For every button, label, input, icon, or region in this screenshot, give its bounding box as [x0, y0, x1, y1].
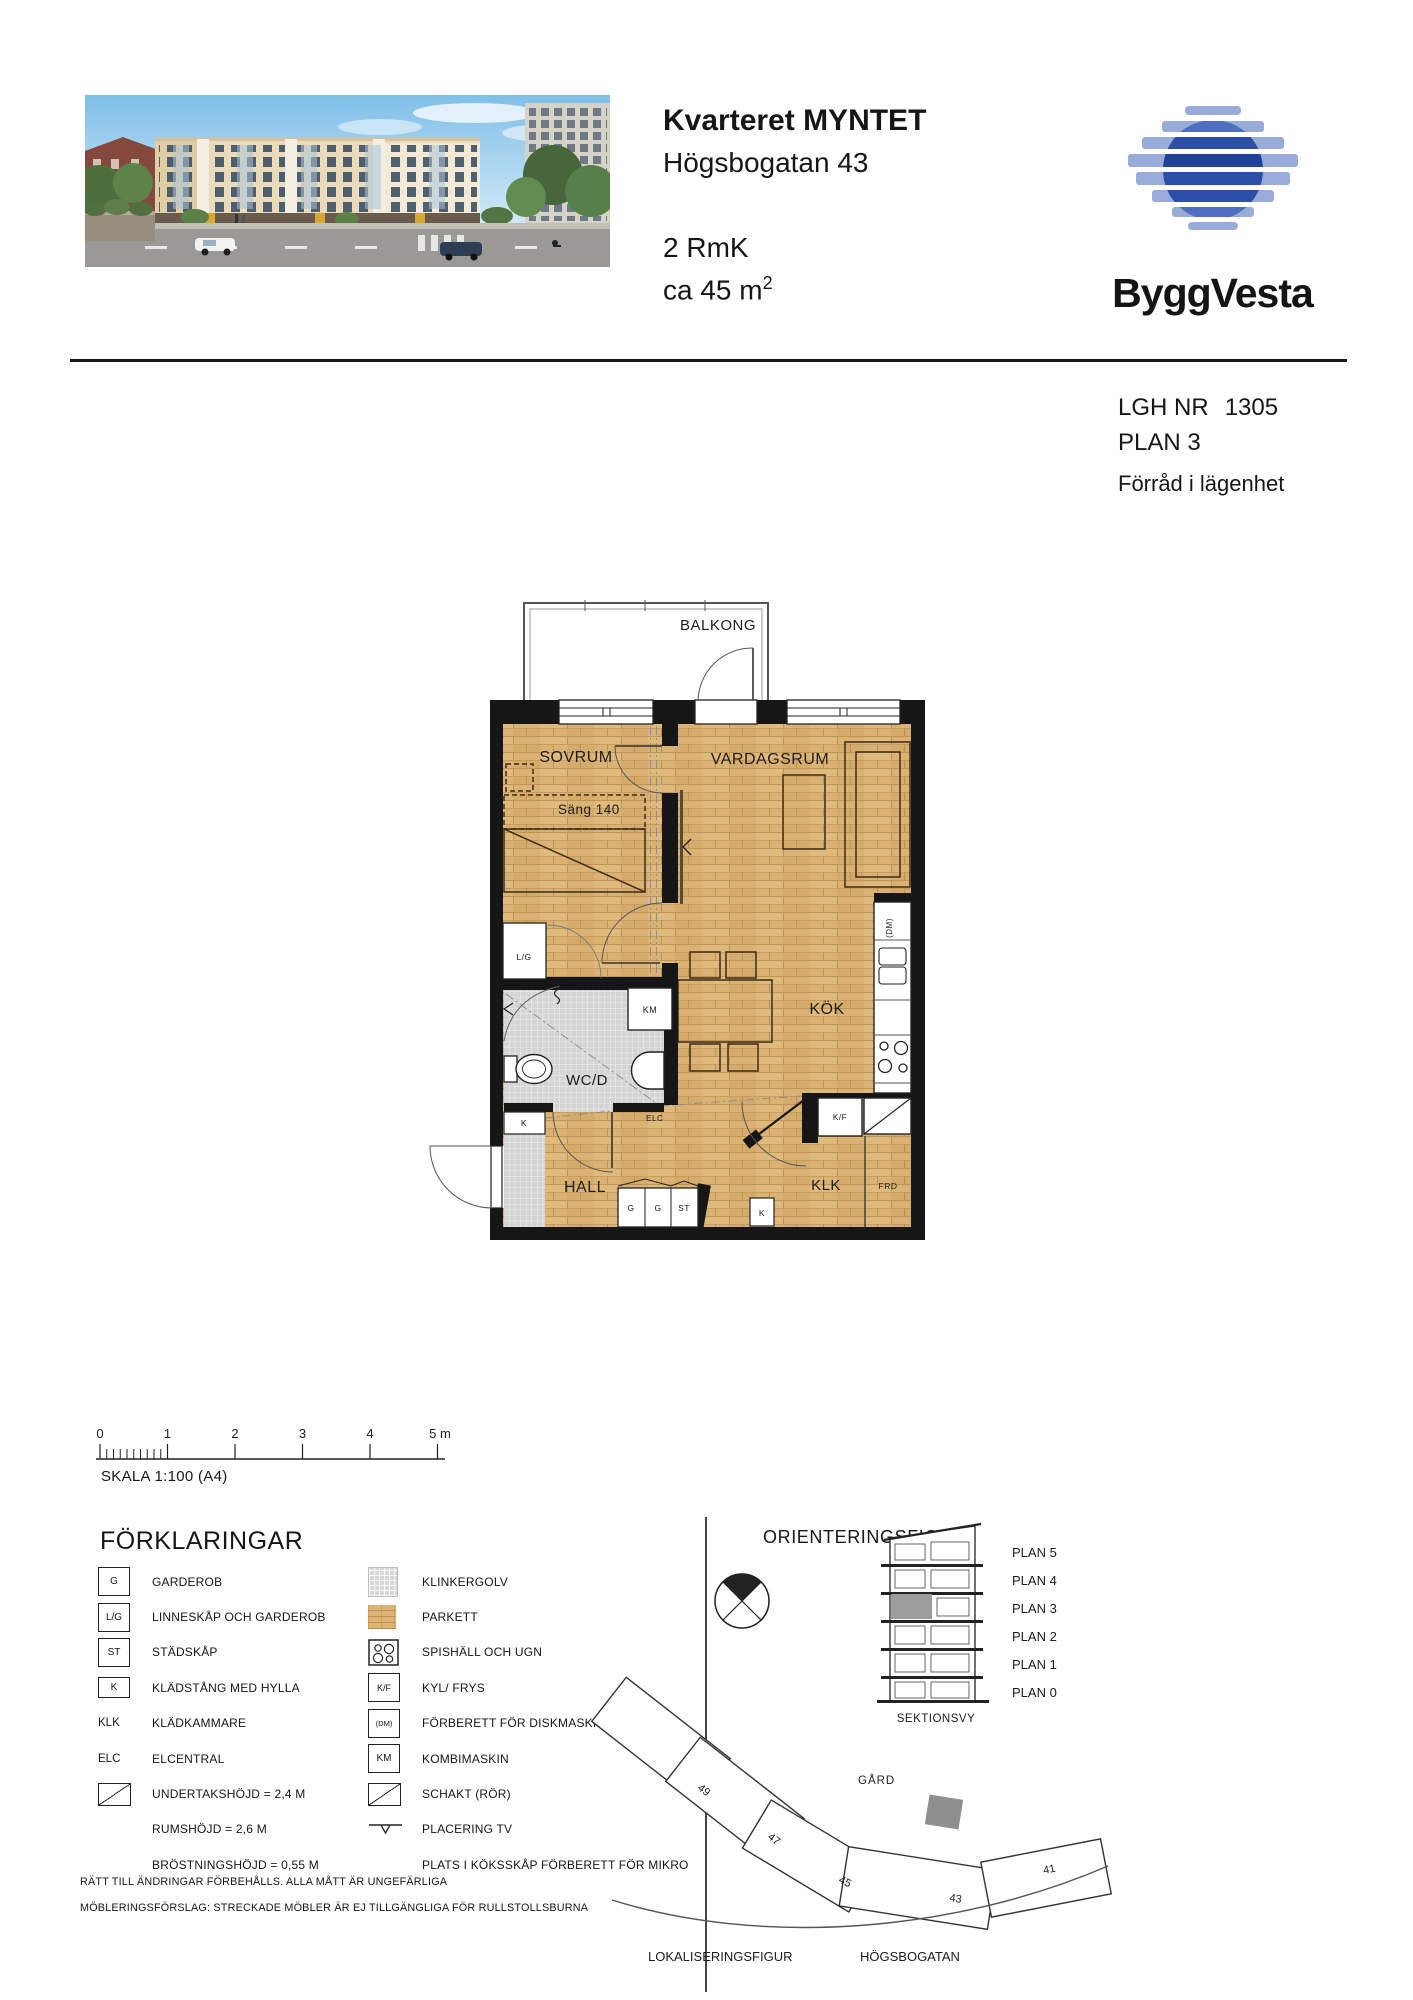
- tick-2: 2: [231, 1426, 238, 1441]
- label-g2: G: [654, 1203, 661, 1213]
- building-photo: [85, 95, 610, 267]
- hogsbogatan-label: HÖGSBOGATAN: [860, 1949, 960, 1964]
- label-sovrum: SOVRUM: [539, 749, 612, 766]
- area-value: ca 45 m: [663, 274, 763, 305]
- plan-labels: PLAN 5 PLAN 4 PLAN 3 PLAN 2 PLAN 1 PLAN …: [1012, 1545, 1057, 1700]
- legend-label: KLINKERGOLV: [422, 1575, 508, 1589]
- legend-label: KLÄDSTÅNG MED HYLLA: [152, 1681, 300, 1695]
- byggvesta-logo: ByggVesta: [1128, 98, 1298, 328]
- lowered-ceiling-icon: [98, 1783, 131, 1806]
- linen-closet: [503, 923, 546, 979]
- lokalisering-label: LOKALISERINGSFIGUR: [648, 1949, 792, 1964]
- apartment-location-marker: [925, 1795, 963, 1830]
- plan-2-label: PLAN 2: [1012, 1629, 1057, 1644]
- photo-main-building: [155, 137, 480, 223]
- sink-icon: [632, 1052, 665, 1089]
- label-kok: KÖK: [809, 1000, 844, 1018]
- toilet-tank: [504, 1056, 517, 1082]
- label-dm: (DM): [885, 918, 894, 938]
- parquet-floor: [497, 710, 918, 1233]
- garderob-symbol: G: [98, 1567, 130, 1596]
- legend-label: STÄDSKÅP: [152, 1645, 218, 1659]
- label-frd: FRD: [879, 1181, 898, 1191]
- number-41: 41: [1042, 1863, 1056, 1877]
- label-vardagsrum: VARDAGSRUM: [711, 751, 830, 768]
- legend-label: KOMBIMASKIN: [422, 1752, 509, 1766]
- k-symbol: K: [98, 1677, 130, 1698]
- byggvesta-globe-icon: [1128, 98, 1298, 248]
- plan-5-label: PLAN 5: [1012, 1545, 1057, 1560]
- km-symbol: KM: [368, 1744, 400, 1773]
- lgh-label: LGH NR: [1118, 394, 1209, 422]
- tick-5: 5 m: [429, 1426, 451, 1441]
- scale-label: SKALA 1:100 (A4): [101, 1468, 228, 1485]
- label-kf: K/F: [833, 1113, 847, 1122]
- section-view: PLAN 5 PLAN 4 PLAN 3 PLAN 2 PLAN 1 PLAN …: [877, 1524, 1057, 1725]
- orientation-figure: PLAN 5 PLAN 4 PLAN 3 PLAN 2 PLAN 1 PLAN …: [580, 1505, 1380, 1995]
- tick-1: 1: [164, 1426, 171, 1441]
- toilet-icon: [516, 1055, 552, 1084]
- tick-0: 0: [96, 1426, 103, 1441]
- photo-cloud: [338, 119, 422, 135]
- legend-label: FÖRBERETT FÖR DISKMASKIN: [422, 1716, 605, 1730]
- note-line: RÄTT TILL ÄNDRINGAR FÖRBEHÅLLS. ALLA MÅT…: [80, 1869, 588, 1895]
- legend-notes: RÄTT TILL ÄNDRINGAR FÖRBEHÅLLS. ALLA MÅT…: [80, 1869, 588, 1921]
- legend-label: PLACERING TV: [422, 1822, 512, 1836]
- label-lg: L/G: [516, 952, 531, 962]
- building-43: [839, 1847, 997, 1930]
- compass-icon: [715, 1574, 769, 1628]
- area: ca 45 m2: [663, 273, 1083, 306]
- plan-4-label: PLAN 4: [1012, 1573, 1057, 1588]
- legend-label: GARDEROB: [152, 1575, 222, 1589]
- address: Högsbogatan 43: [663, 147, 1083, 179]
- floorplan-document: Kvarteret MYNTET Högsbogatan 43 2 RmK ca…: [0, 0, 1413, 2000]
- brand-wordmark: ByggVesta: [1095, 270, 1330, 317]
- gard-label: GÅRD: [858, 1774, 895, 1787]
- klinker-swatch: [368, 1567, 398, 1597]
- legend-label: SCHAKT (RÖR): [422, 1787, 511, 1801]
- room-count: 2 RmK: [663, 232, 1083, 264]
- label-st: ST: [678, 1203, 690, 1213]
- kf-symbol: K/F: [368, 1673, 400, 1702]
- klk-symbol: KLK: [98, 1717, 120, 1729]
- label-balkong: BALKONG: [680, 617, 756, 634]
- label-k-hall: K: [521, 1118, 527, 1128]
- lgh-number: 1305: [1225, 394, 1278, 422]
- area-sup: 2: [763, 273, 773, 293]
- plan-1-label: PLAN 1: [1012, 1657, 1057, 1672]
- scale-bar: 0 1 2 3 4 5 m: [70, 1408, 470, 1468]
- kitchen-sink-icon: [879, 948, 906, 965]
- legend-row-garderob: G GARDEROB: [98, 1564, 398, 1599]
- label-g1: G: [627, 1203, 634, 1213]
- parkett-swatch: [368, 1605, 396, 1629]
- building-41: [981, 1839, 1111, 1917]
- dm-symbol: (DM): [368, 1709, 400, 1738]
- label-sang: Säng 140: [558, 802, 620, 817]
- storage-note: Förråd i lägenhet: [1118, 471, 1284, 497]
- label-klk: KLK: [811, 1177, 841, 1194]
- lg-symbol: L/G: [98, 1603, 130, 1632]
- legend-label: SPISHÄLL OCH UGN: [422, 1645, 542, 1659]
- plan-3-label: PLAN 3: [1012, 1601, 1057, 1616]
- legend-row-linneskap: L/G LINNESKÅP OCH GARDEROB: [98, 1599, 398, 1634]
- legend-label: UNDERTAKSHÖJD = 2,4 M: [152, 1787, 305, 1801]
- legend-label: RUMSHÖJD = 2,6 M: [152, 1822, 267, 1836]
- legend-row-undertak: UNDERTAKSHÖJD = 2,4 M: [98, 1776, 398, 1811]
- label-k-klk: K: [759, 1208, 765, 1218]
- legend-row-elcentral: ELC ELCENTRAL: [98, 1741, 398, 1776]
- legend-row-stadskap: ST STÄDSKÅP: [98, 1635, 398, 1670]
- label-hall: HALL: [564, 1179, 606, 1196]
- window-vardagsrum: [787, 700, 900, 724]
- plan3-marker: [891, 1594, 932, 1619]
- label-km: KM: [643, 1005, 658, 1015]
- tick-4: 4: [366, 1426, 373, 1441]
- plan-0-label: PLAN 0: [1012, 1685, 1057, 1700]
- balcony: [524, 600, 768, 705]
- apartment-info: LGH NR 1305 PLAN 3 Förråd i lägenhet: [1118, 394, 1284, 497]
- legend-title: FÖRKLARINGAR: [100, 1527, 303, 1556]
- page-title: Kvarteret MYNTET: [663, 104, 1083, 138]
- legend-row-rumshojd: RUMSHÖJD = 2,6 M: [98, 1812, 398, 1847]
- number-43: 43: [949, 1892, 963, 1906]
- photo-cloud: [413, 103, 537, 123]
- floor-plan: BALKONG SOVRUM VARDAGSRUM Säng 140 L/G K…: [420, 592, 940, 1254]
- header-divider: [70, 359, 1347, 362]
- legend-label: LINNESKÅP OCH GARDEROB: [152, 1610, 326, 1624]
- sektionsvy-label: SEKTIONSVY: [897, 1713, 976, 1725]
- stove-legend-icon: [368, 1639, 399, 1666]
- photo-street: [85, 223, 610, 267]
- tv-legend-icon: [368, 1822, 404, 1836]
- tick-3: 3: [299, 1426, 306, 1441]
- site-plan: 49 47 45 43 41 GÅRD LOKALISERINGSFIGUR H…: [592, 1677, 1111, 1964]
- shaft-icon: [368, 1783, 401, 1806]
- window-sovrum: [559, 700, 653, 724]
- label-elc: ELC: [646, 1114, 663, 1123]
- scale-ticks: 0 1 2 3 4 5 m: [96, 1426, 450, 1441]
- legend-row-kladstang: K KLÄDSTÅNG MED HYLLA: [98, 1670, 398, 1705]
- legend-label: PARKETT: [422, 1610, 478, 1624]
- st-symbol: ST: [98, 1638, 130, 1667]
- label-wcd: WC/D: [566, 1072, 608, 1089]
- note-line: MÖBLERINGSFÖRSLAG: STRECKADE MÖBLER ÄR E…: [80, 1895, 588, 1921]
- legend-label: KLÄDKAMMARE: [152, 1716, 246, 1730]
- legend-row-kladkammare: KLK KLÄDKAMMARE: [98, 1706, 398, 1741]
- header: Kvarteret MYNTET Högsbogatan 43 2 RmK ca…: [663, 104, 1083, 306]
- entrance-door: [430, 1146, 504, 1208]
- legend-left-column: G GARDEROB L/G LINNESKÅP OCH GARDEROB ST…: [98, 1564, 398, 1883]
- legend-label: KYL/ FRYS: [422, 1681, 485, 1695]
- legend-label: ELCENTRAL: [152, 1752, 225, 1766]
- plan-number: PLAN 3: [1118, 429, 1284, 457]
- elc-symbol: ELC: [98, 1753, 120, 1765]
